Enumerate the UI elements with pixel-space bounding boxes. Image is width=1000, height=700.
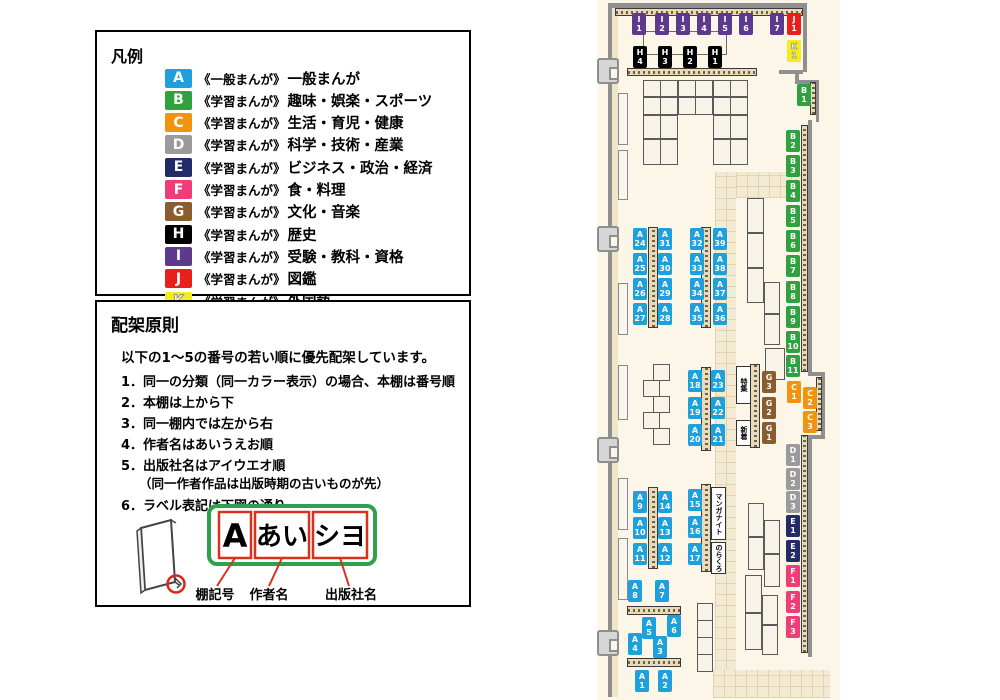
door-icon [597,226,619,252]
shelf-label-I6: I6 [739,13,753,35]
shelf-label-B10: B10 [786,331,800,353]
legend-row-E: E《学習まんが》ビジネス・政治・経済 [165,157,433,177]
wall-shelf [618,538,628,600]
table-block [643,97,678,115]
feature-sign: 特集 [736,366,751,404]
rule-4: 4．作者名はあいうえお順 [121,437,465,454]
shelf-label-A14: A14 [658,491,672,513]
author-sample: あい [256,522,308,552]
shelf-strip [627,606,681,615]
shelf-strip [627,658,681,667]
legend-category: 一般まんが [288,68,361,89]
feature-sign: 新着 [736,420,751,446]
table-block [713,80,748,97]
legend-prefix: 《一般まんが》 [198,69,286,88]
legend-chip-I: I [165,247,192,266]
shelf-label-A33: A33 [690,253,704,275]
shelf-label-C2: C2 [803,387,817,409]
door-icon [597,630,619,656]
table-block [748,503,764,537]
wall-segment [803,3,807,72]
table-block [745,613,762,650]
label-diagram: A あい シヨ 棚記号 作者名 出版社名 [97,502,469,602]
wall-segment [808,120,812,374]
legend-category: 文化・音楽 [288,201,361,222]
table-block [747,268,764,303]
legend-category: 受験・教科・資格 [288,246,404,267]
legend-prefix: 《学習まんが》 [198,180,286,199]
shelf-label-A27: A27 [633,303,647,325]
wall-segment [779,70,803,74]
feature-sign: のらくろ [711,542,726,574]
shelf-label-A30: A30 [658,253,672,275]
book-icon [137,520,185,593]
shelf-label-G3: G3 [762,371,776,393]
shelf-label-A28: A28 [658,303,672,325]
shelf-label-I5: I5 [718,13,732,35]
legend-row-G: G《学習まんが》文化・音楽 [165,202,360,222]
wall-shelf [618,365,628,420]
shelf-label-I2: I2 [655,13,669,35]
rule-note: （同一作者作品は出版時期の古いものが先） [139,475,465,492]
table-block [762,625,778,655]
shelf-label-E2: E2 [786,540,800,562]
shelf-label-I3: I3 [676,13,690,35]
legend-chip-B: B [165,91,192,110]
shelf-label-J1: J1 [787,13,801,35]
legend-row-D: D《学習まんが》科学・技術・産業 [165,135,404,155]
shelf-label-H4: H4 [633,46,647,68]
walkway-tiles [713,670,830,698]
shelf-label-A12: A12 [658,543,672,565]
legend-prefix: 《学習まんが》 [198,158,286,177]
legend-row-J: J《学習まんが》図鑑 [165,269,317,289]
floor-map: 特集新着マンガナイトのらくろ I1I2I3I4I5I6I7J1K1H4H3H2H… [597,0,840,700]
shelf-label-B5: B5 [786,205,800,227]
table-block [713,97,748,115]
legend-row-F: F《学習まんが》食・料理 [165,180,346,200]
shelf-label-A1: A1 [635,670,649,692]
shelf-strip [648,227,658,328]
rule-3: 3．同一棚内では左から右 [121,416,465,433]
legend-prefix: 《学習まんが》 [198,269,286,288]
legend-chip-G: G [165,202,192,221]
shelf-label-D2: D2 [786,468,800,490]
shelf-code-sample: A [223,517,248,555]
legend-chip-J: J [165,269,192,288]
table-block [748,537,764,570]
shelf-label-A6: A6 [667,615,681,637]
rule-5: 5．出版社名はアイウエオ順（同一作者作品は出版時期の古いものが先） [121,458,465,492]
shelf-strip [648,487,658,569]
table-block [745,575,762,613]
shelf-label-A26: A26 [633,278,647,300]
shelf-label-A19: A19 [688,397,702,419]
wall-shelf [618,283,628,335]
shelf-label-A11: A11 [633,543,647,565]
shelf-label-F3: F3 [786,616,800,638]
table-block [747,233,764,268]
table-block [713,139,748,165]
shelf-label-D3: D3 [786,491,800,513]
shelf-label-F2: F2 [786,591,800,613]
table-block [678,80,713,97]
table-block [764,554,780,587]
principles-box: 配架原則 以下の1～5の番号の若い順に優先配架しています。 1．同一の分類（同一… [95,300,471,607]
legend-chip-F: F [165,180,192,199]
wall-shelf [618,478,628,530]
shelf-label-A20: A20 [688,424,702,446]
shelf-label-G2: G2 [762,397,776,419]
shelf-label-A29: A29 [658,278,672,300]
table-block [643,412,660,429]
shelf-label-H1: H1 [708,46,722,68]
table-block [643,80,678,97]
shelf-label-A15: A15 [688,489,702,511]
legend-chip-E: E [165,158,192,177]
legend-prefix: 《学習まんが》 [198,225,286,244]
legend-category: 図鑑 [288,268,317,289]
legend-chip-C: C [165,113,192,132]
shelf-strip [801,125,808,372]
shelf-label-A39: A39 [713,228,727,250]
shelf-strip [801,435,808,653]
shelf-label-A10: A10 [633,517,647,539]
table-block [697,654,713,672]
legend-category: 歴史 [288,224,317,245]
shelf-label-I7: I7 [770,13,784,35]
table-block [762,595,778,625]
shelf-strip [701,367,711,451]
wall-shelf [618,150,628,200]
shelf-label-A32: A32 [690,228,704,250]
legend-title: 凡例 [111,43,143,67]
caption-shelf-code: 棚記号 [195,587,234,602]
shelf-label-A25: A25 [633,253,647,275]
shelf-label-A4: A4 [628,633,642,655]
shelf-label-K1: K1 [787,40,801,62]
principles-title: 配架原則 [111,311,179,336]
shelf-strip [750,364,760,448]
table-block [764,282,780,314]
principles-intro: 以下の1～5の番号の若い順に優先配架しています。 [121,346,435,366]
caption-author: 作者名 [249,587,288,602]
shelf-label-I1: I1 [632,13,646,35]
wall-segment [608,3,612,697]
shelf-label-A31: A31 [658,228,672,250]
door-icon [597,437,619,463]
rule-1: 1．同一の分類（同一カラー表示）の場合、本棚は番号順 [121,374,465,391]
shelf-label-F1: F1 [786,565,800,587]
feature-sign: マンガナイト [711,487,726,540]
shelf-label-A3: A3 [653,636,667,658]
page: 凡例 A《一般まんが》一般まんがB《学習まんが》趣味・娯楽・スポーツC《学習まん… [0,0,1000,700]
table-block [653,428,670,445]
shelf-label-A38: A38 [713,253,727,275]
shelf-label-B3: B3 [786,155,800,177]
shelf-label-A7: A7 [655,580,669,602]
legend-prefix: 《学習まんが》 [198,91,286,110]
legend-category: 食・料理 [288,179,346,200]
legend-row-I: I《学習まんが》受験・教科・資格 [165,246,404,266]
table-block [697,637,713,655]
table-block [653,364,670,381]
legend-chip-H: H [165,225,192,244]
shelf-label-A9: A9 [633,491,647,513]
legend-box: 凡例 A《一般まんが》一般まんがB《学習まんが》趣味・娯楽・スポーツC《学習まん… [95,30,471,296]
legend-prefix: 《学習まんが》 [198,113,286,132]
shelf-label-A13: A13 [658,517,672,539]
shelf-label-B7: B7 [786,255,800,277]
shelf-label-B9: B9 [786,306,800,328]
shelf-label-A34: A34 [690,278,704,300]
table-block [764,314,780,345]
legend-category: 生活・育児・健康 [288,112,404,133]
table-block [713,115,748,139]
shelf-label-B1: B1 [797,84,811,106]
table-block [653,396,670,413]
shelf-label-B4: B4 [786,180,800,202]
shelf-label-A37: A37 [713,278,727,300]
shelf-label-A17: A17 [688,543,702,565]
legend-row-B: B《学習まんが》趣味・娯楽・スポーツ [165,90,432,110]
shelf-label-C3: C3 [803,411,817,433]
legend-category: 趣味・娯楽・スポーツ [288,90,433,111]
table-block [747,198,764,233]
shelf-label-E1: E1 [786,515,800,537]
shelf-label-I4: I4 [697,13,711,35]
shelf-label-A8: A8 [628,580,642,602]
shelf-label-B2: B2 [786,130,800,152]
wall-segment [808,437,812,657]
publisher-sample: シヨ [314,522,366,552]
legend-row-C: C《学習まんが》生活・育児・健康 [165,113,404,133]
shelf-label-A35: A35 [690,303,704,325]
shelf-label-D1: D1 [786,444,800,466]
caption-publisher: 出版社名 [325,587,377,602]
legend-chip-D: D [165,135,192,154]
legend-category: 科学・技術・産業 [288,134,404,155]
shelf-label-A21: A21 [711,424,725,446]
table-block [697,620,713,638]
shelf-label-B8: B8 [786,281,800,303]
shelf-label-A24: A24 [633,228,647,250]
shelf-label-B11: B11 [786,355,800,377]
legend-prefix: 《学習まんが》 [198,202,286,221]
shelf-label-G1: G1 [762,422,776,444]
legend-category: ビジネス・政治・経済 [288,157,433,178]
legend-chip-A: A [165,69,192,88]
legend-row-H: H《学習まんが》歴史 [165,224,317,244]
table-block [643,115,678,139]
shelf-label-H3: H3 [658,46,672,68]
legend-row-A: A《一般まんが》一般まんが [165,68,360,88]
wall-segment [816,82,819,122]
legend-prefix: 《学習まんが》 [198,247,286,266]
shelf-label-A2: A2 [658,670,672,692]
table-block [764,520,780,554]
shelf-label-A22: A22 [711,397,725,419]
shelf-strip [701,484,711,572]
rule-2: 2．本棚は上から下 [121,395,465,412]
table-block [643,139,678,165]
table-block [643,380,660,397]
table-block [697,603,713,621]
shelf-label-B6: B6 [786,230,800,252]
legend-prefix: 《学習まんが》 [198,135,286,154]
door-icon [597,58,619,84]
shelf-label-A16: A16 [688,516,702,538]
shelf-label-A23: A23 [711,370,725,392]
shelf-label-H2: H2 [683,46,697,68]
table-block [678,97,713,115]
shelf-label-A36: A36 [713,303,727,325]
shelf-strip [627,68,757,76]
shelf-label-C1: C1 [787,381,801,403]
shelf-label-A18: A18 [688,370,702,392]
wall-shelf [618,93,628,145]
